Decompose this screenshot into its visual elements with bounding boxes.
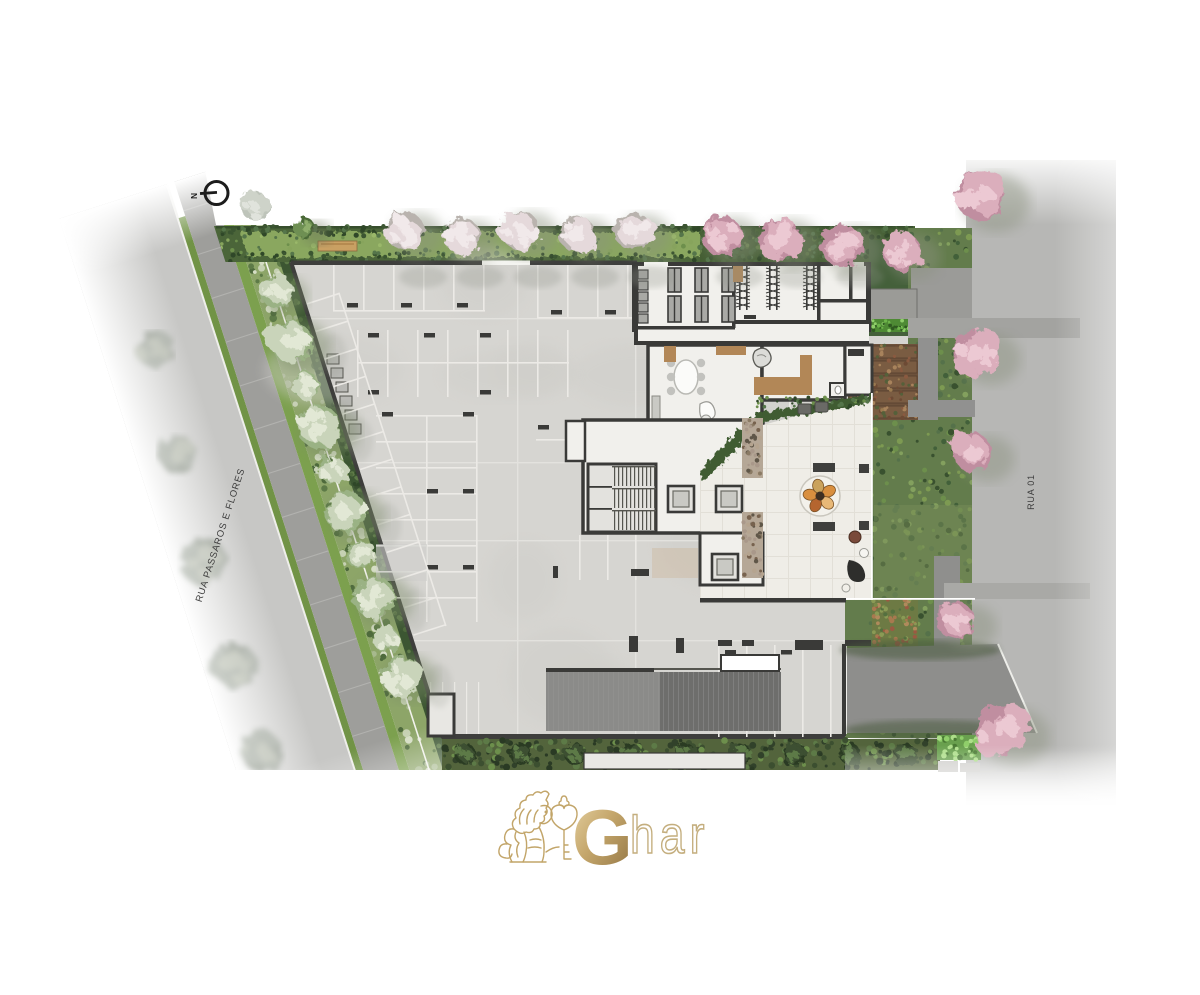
svg-text:har: har [630, 806, 709, 864]
svg-text:G: G [572, 793, 633, 881]
svg-text:RUA 01: RUA 01 [1026, 474, 1036, 510]
svg-text:N: N [189, 193, 199, 199]
